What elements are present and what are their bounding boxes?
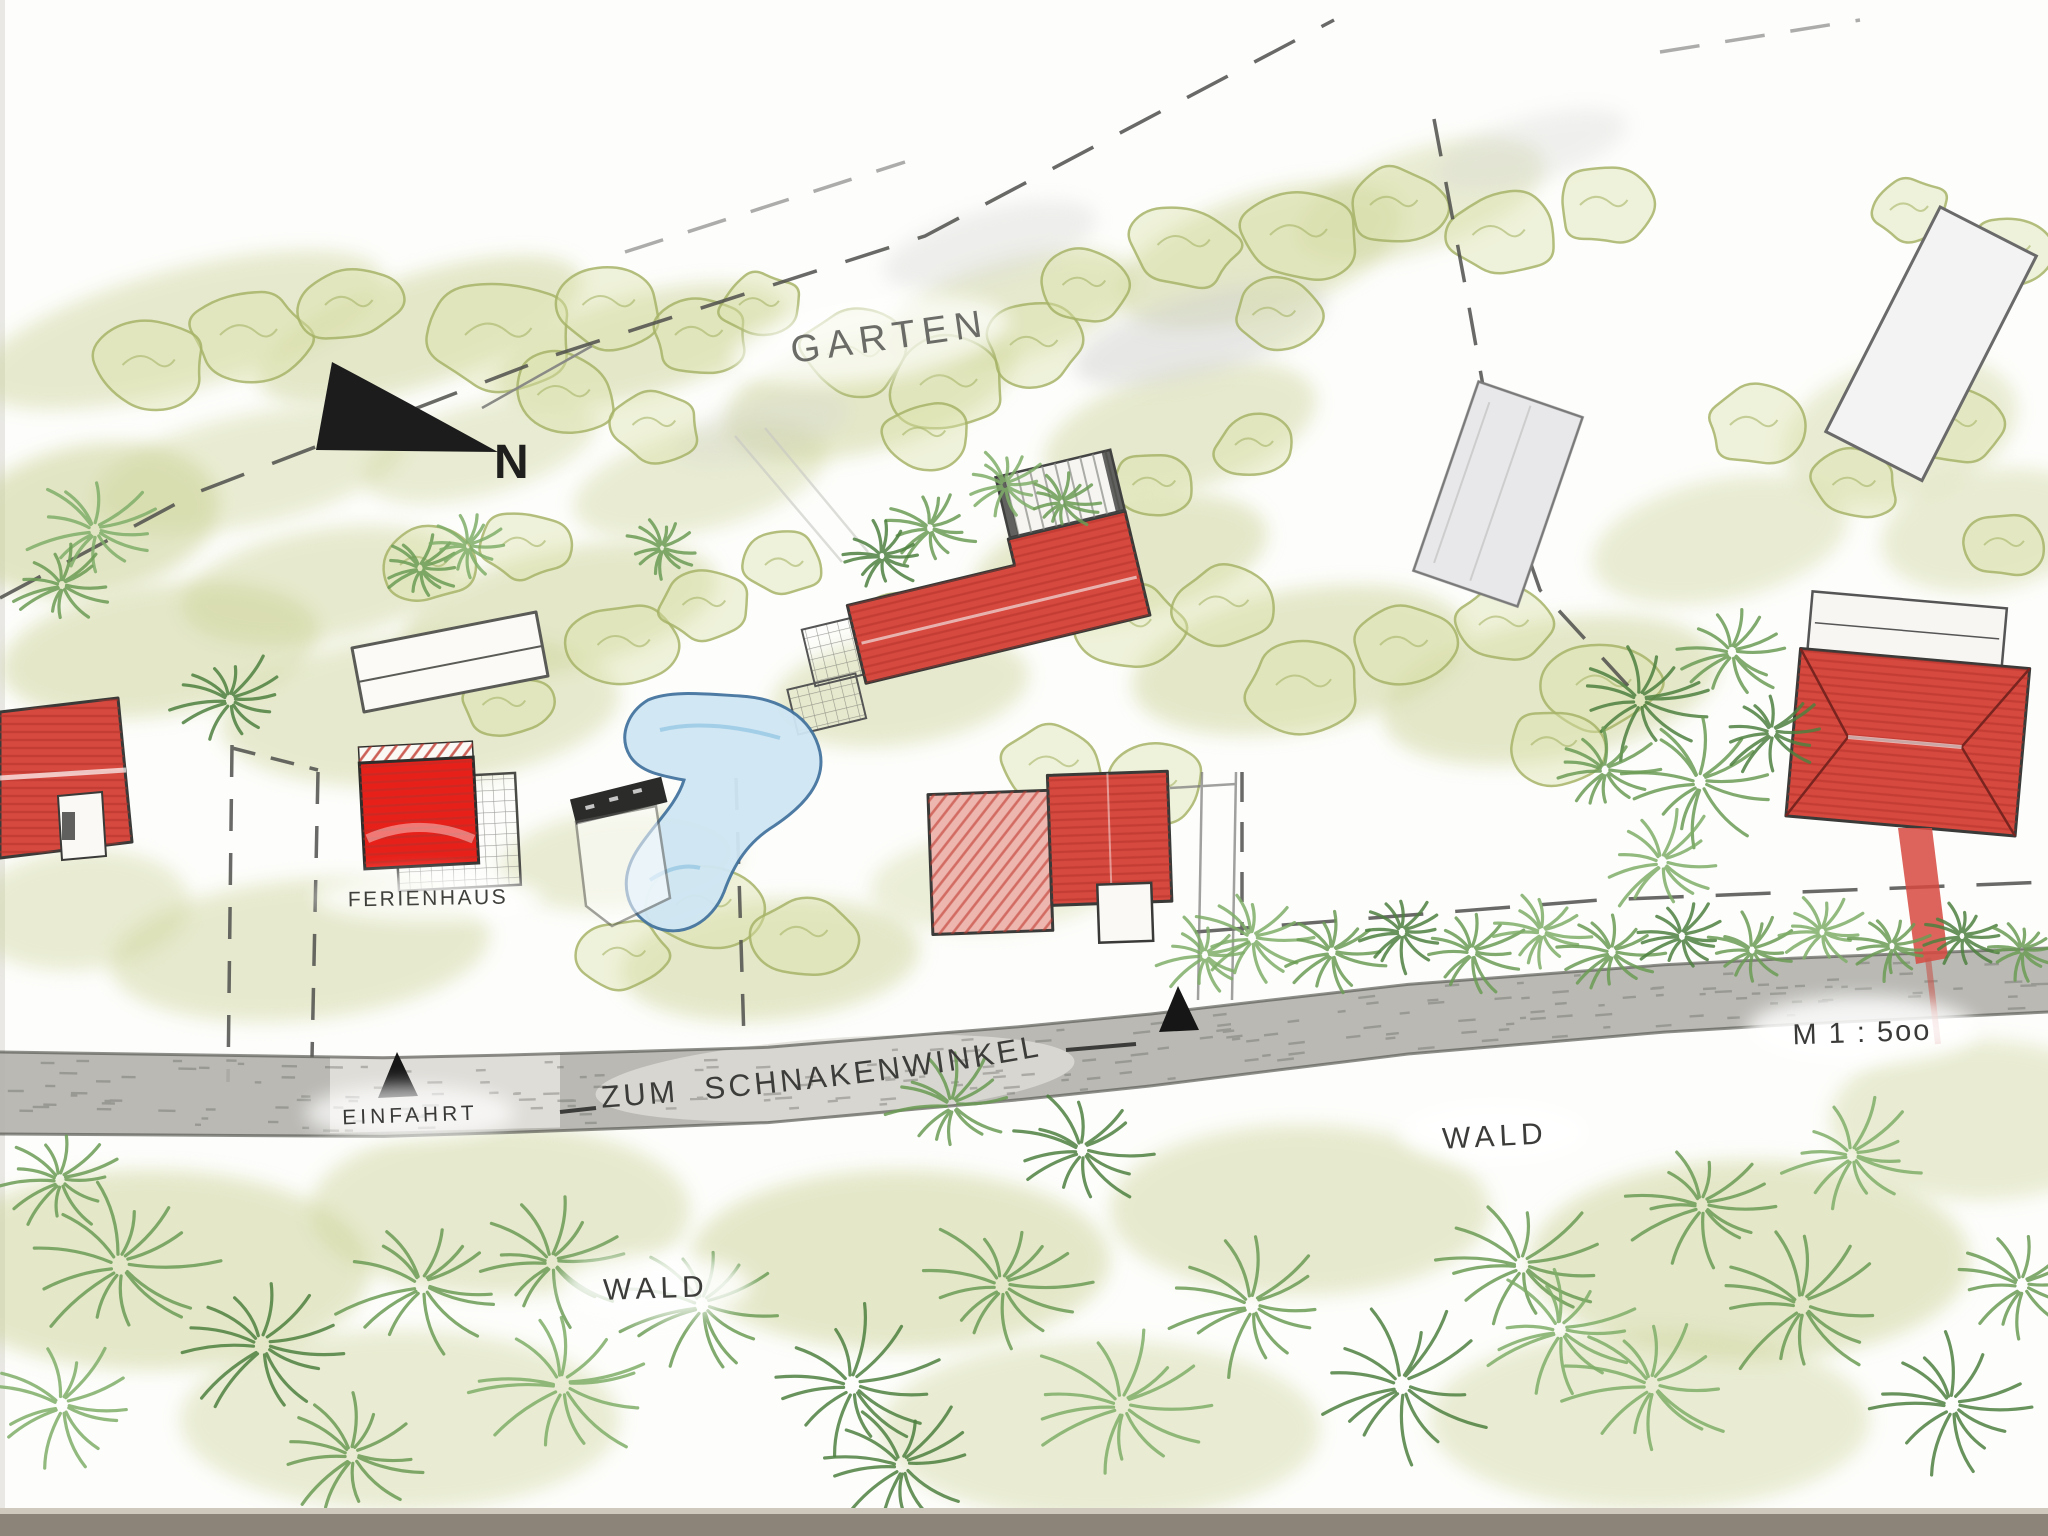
shrub — [1114, 455, 1191, 515]
shrub — [1563, 168, 1655, 243]
terrace-bar — [570, 777, 670, 926]
ferienhaus-label: FERIENHAUS — [348, 886, 509, 912]
wald-label-right: WALD — [1441, 1117, 1548, 1155]
scale-label: M 1 : 5oo — [1792, 1015, 1932, 1052]
scanned-site-plan: GARTEN N FERIENHAUS EINFAHRT ZUM SCHNAKE… — [0, 0, 2048, 1536]
shade-patch — [880, 1340, 1320, 1520]
scan-bottom-band — [0, 1514, 2048, 1536]
neighbor-house-right — [1786, 591, 2035, 836]
shrub — [1963, 515, 2043, 575]
shade-patch — [1430, 1330, 1870, 1510]
wald-label-left: WALD — [603, 1270, 710, 1307]
scan-shadow-line — [0, 1508, 2048, 1514]
site-plan-drawing: GARTEN N FERIENHAUS EINFAHRT ZUM SCHNAKE… — [0, 0, 2048, 1536]
north-label: N — [494, 436, 529, 489]
shade-patch — [690, 1170, 1110, 1350]
einfahrt-label: EINFAHRT — [342, 1102, 478, 1130]
neighbor-house-left — [0, 698, 132, 860]
